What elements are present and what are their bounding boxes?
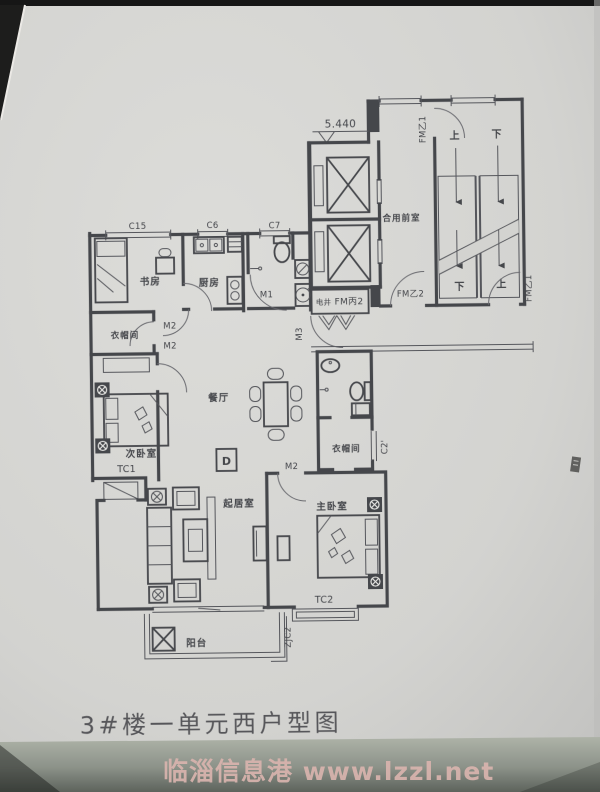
room-label-kitchen: 厨房 — [199, 277, 220, 289]
watermark: 临淄信息港 www.lzzl.net — [163, 757, 494, 786]
photo-edge-top — [0, 0, 600, 6]
window-label-c7: C7 — [269, 221, 281, 231]
room-label-master: 主卧室 — [316, 500, 348, 512]
stairs-up-label: 上 — [449, 129, 459, 142]
wall-column — [369, 102, 379, 132]
room-label-shaft: 电井 — [316, 297, 332, 307]
plan-title: 3#楼一单元西户型图 — [80, 709, 343, 740]
door-label-fmy1-top: FM乙1 — [418, 116, 428, 143]
radiator-box — [367, 497, 382, 512]
unit-label: D — [222, 455, 231, 468]
window-label-c2: C2' — [380, 440, 390, 455]
room-label-lobby: 合用前室 — [381, 213, 420, 224]
floorplan-svg: 上 下 下 上 FM乙1 FM乙1 FM乙2 合用前室 5.440 — [0, 0, 600, 792]
door-label-fmy1-bottom: FM乙1 — [524, 274, 534, 301]
door-label-m2-cloak: M2 — [163, 342, 176, 352]
window-label-c15: C15 — [129, 222, 147, 232]
radiator-box — [95, 438, 110, 453]
door-label-fmy2: FM乙2 — [397, 289, 424, 299]
room-label-balcony: 阳台 — [186, 637, 207, 649]
door-label-m2-study: M2 — [163, 322, 176, 332]
wall — [435, 138, 437, 305]
room-label-bed2: 次卧室 — [126, 448, 158, 460]
door-label-m1: M1 — [260, 290, 273, 300]
paper — [0, 0, 600, 792]
stairs-down-label-2: 下 — [454, 281, 464, 293]
room-label-living: 起居室 — [222, 498, 255, 510]
floorplan-photo: 上 下 下 上 FM乙1 FM乙1 FM乙2 合用前室 5.440 — [0, 0, 600, 792]
wall-column — [370, 285, 380, 307]
radiator-box — [95, 382, 110, 397]
window-label-zjc2: ZJC2 — [284, 627, 294, 648]
door-label-m2-master: M2 — [285, 462, 298, 472]
room-label-cloak2: 衣帽间 — [332, 443, 361, 454]
window-label-tc2: TC2 — [314, 595, 334, 606]
radiator-box — [368, 574, 383, 589]
stairs-up-label-2: 上 — [496, 277, 506, 290]
stairs-down-label: 下 — [491, 129, 501, 141]
room-label-cloak1: 衣帽间 — [111, 330, 140, 341]
photo-edge-right — [594, 0, 600, 740]
room-label-dining: 餐厅 — [207, 392, 229, 404]
door-label-fmb2: FM丙2 — [334, 296, 363, 307]
window-label-tc1: TC1 — [116, 464, 136, 475]
window-label-c6: C6 — [207, 221, 219, 231]
elevation-label: 5.440 — [325, 118, 357, 130]
room-label-study: 书房 — [140, 276, 161, 288]
door-label-m3: M3 — [295, 327, 305, 340]
